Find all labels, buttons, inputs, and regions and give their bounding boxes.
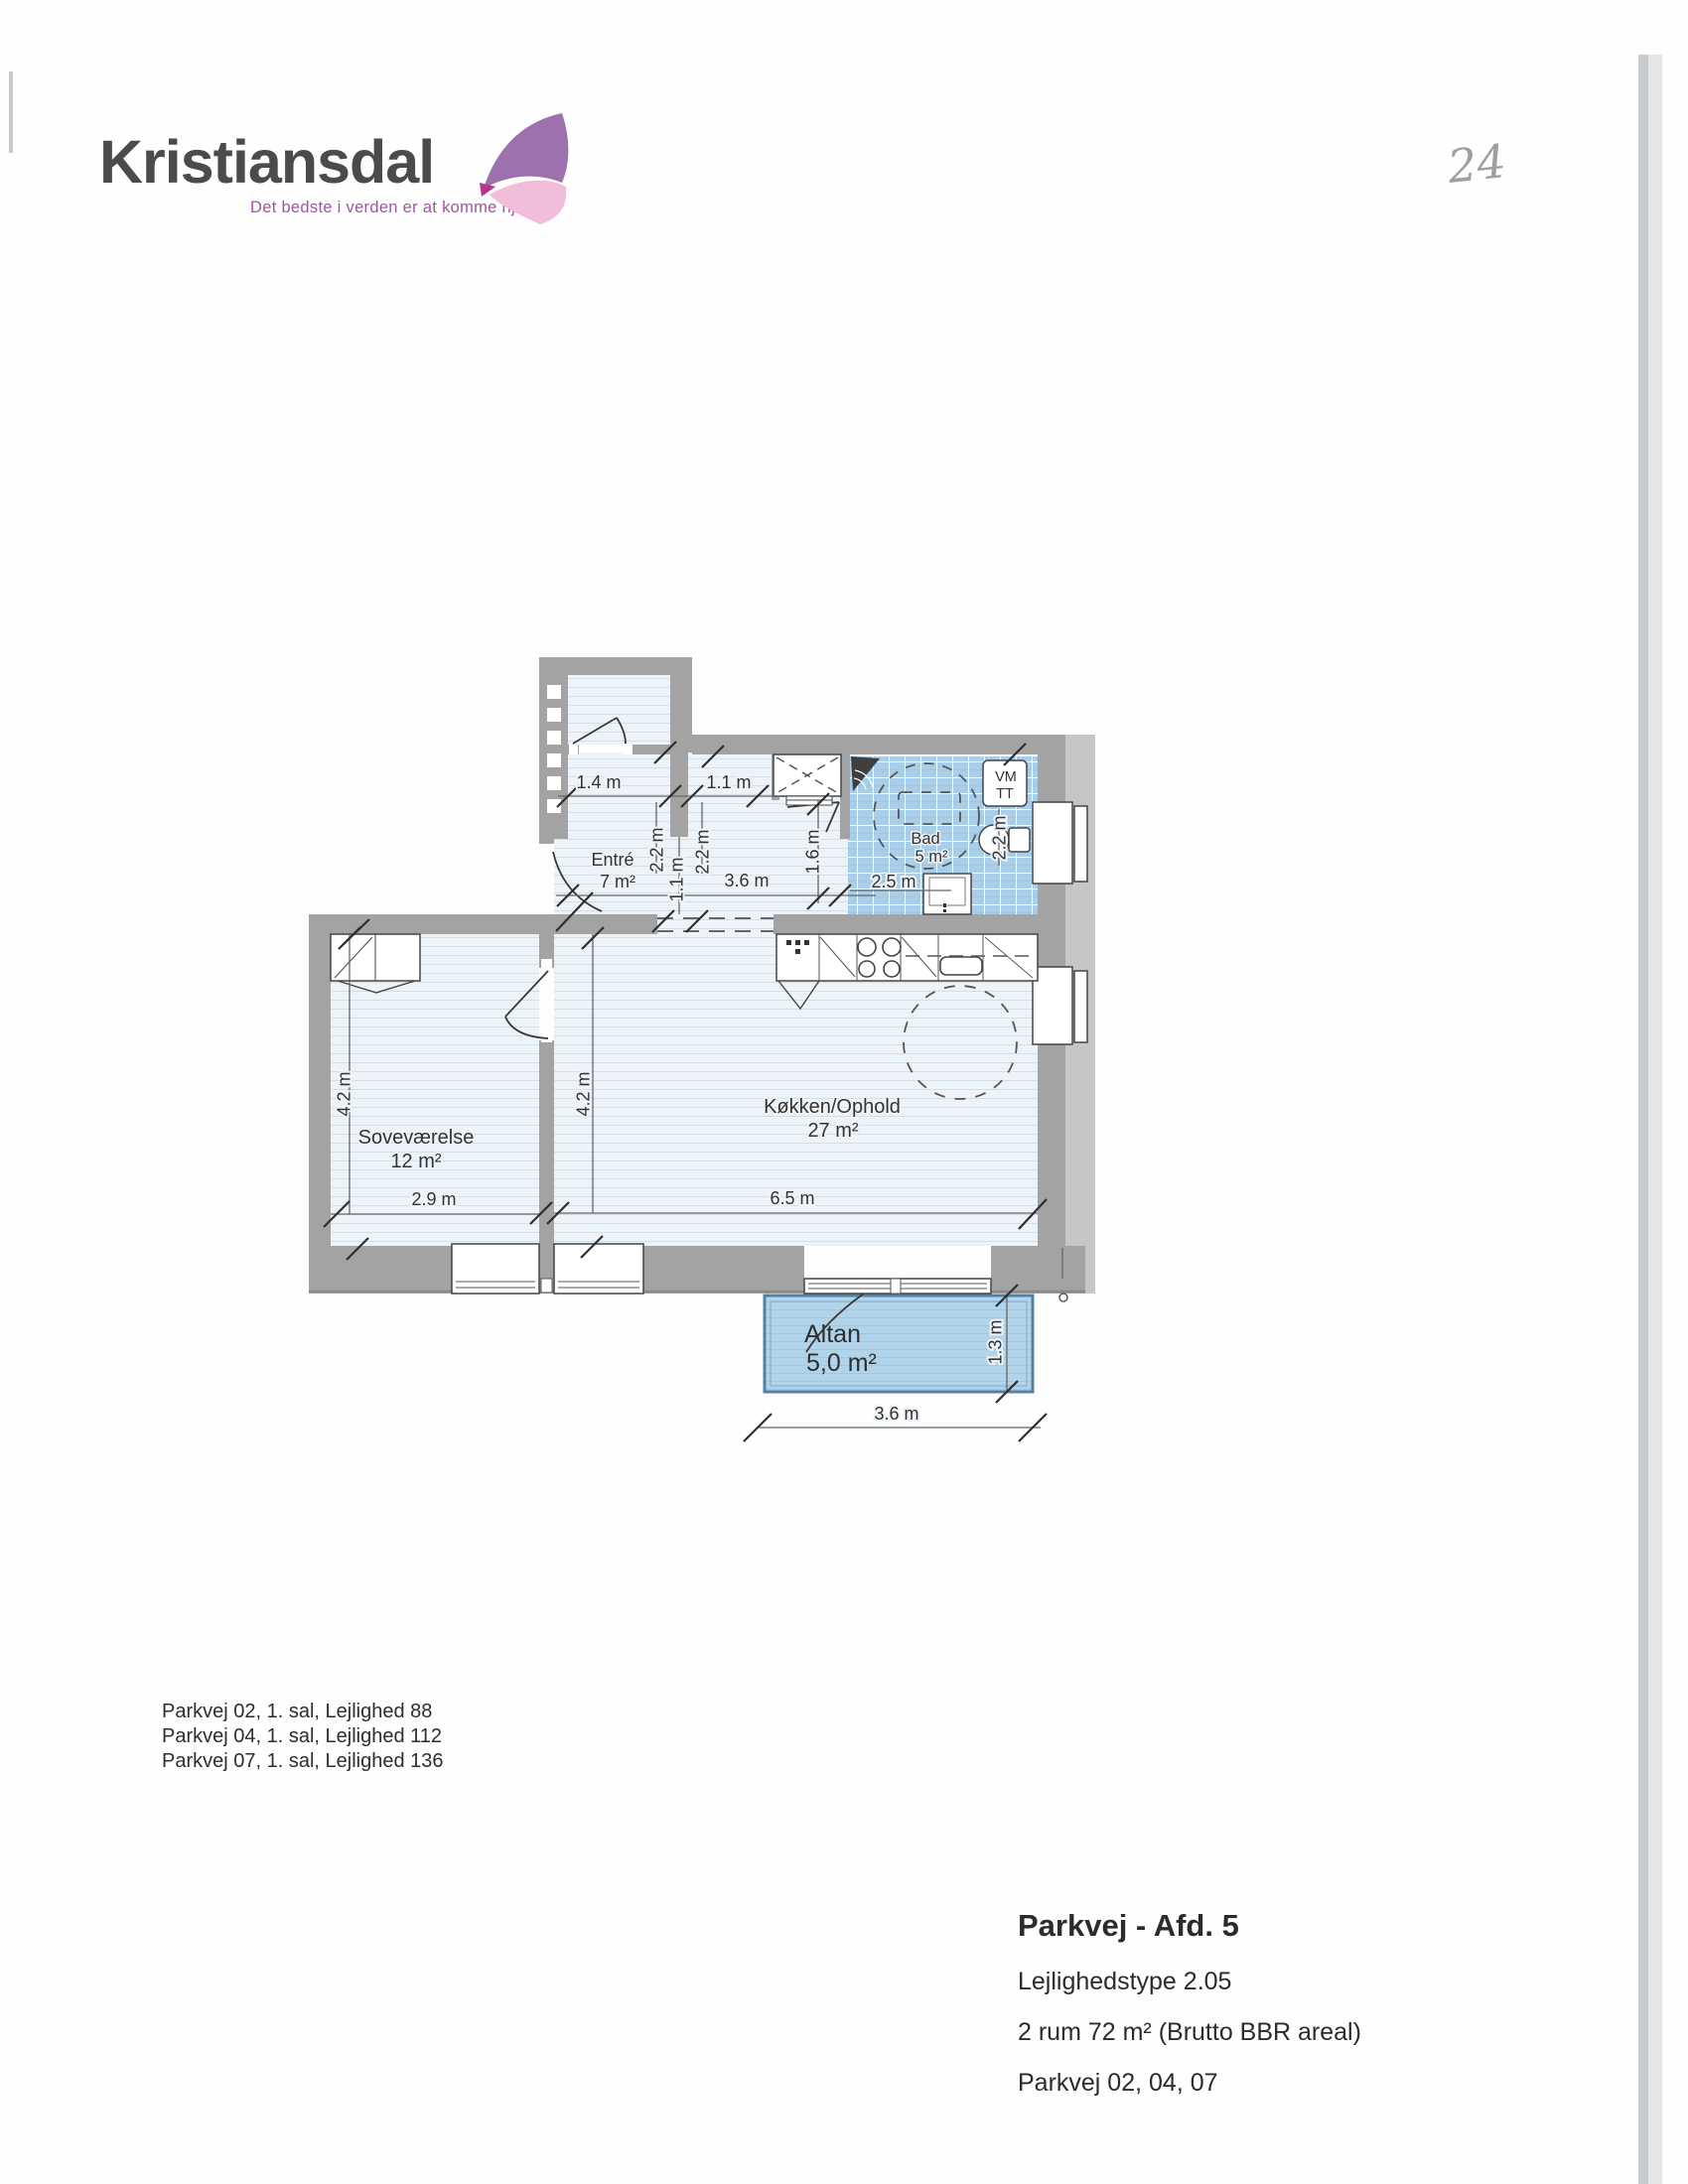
dim-1-4: 1.4 m [576,772,621,792]
dim-2-2b: 2.2 m [692,829,712,874]
room-label-sovevaerelse: Soveværelse [358,1127,475,1149]
dim-1-1a: 1.1 m [706,772,751,792]
dim-6-5: 6.5 m [770,1188,814,1208]
room-label-altan: Altan [804,1320,861,1348]
dim-2-5: 2.5 m [871,872,915,891]
room-area-altan: 5,0 m² [806,1349,877,1377]
dim-1-1b: 1.1 m [666,857,686,901]
room-area-sovevaerelse: 12 m² [390,1151,441,1172]
dim-3-6b: 3.6 m [874,1404,918,1424]
room-floor-vestibule [568,675,670,745]
dim-2-9: 2.9 m [411,1189,456,1209]
room-label-bad: Bad [911,830,939,848]
room-area-bad: 5 m² [915,848,949,866]
dryer-label: TT [996,786,1014,802]
room-label-kokken: Køkken/Ophold [764,1096,901,1118]
title-block: Parkvej - Afd. 5 Lejlighedstype 2.05 2 r… [1018,1908,1361,2119]
living-window [554,1244,643,1294]
apartment-addresses: Parkvej 02, 04, 07 [1018,2069,1361,2098]
washer-label: VM [995,769,1017,785]
dim-2-2a: 2.2 m [646,827,666,872]
bath-radiator [1033,802,1072,884]
room-area-kokken: 27 m² [807,1120,858,1142]
sink-icon [923,874,971,914]
dim-4-2a: 4.2 m [334,1071,353,1116]
dim-1-6: 1.6 m [802,829,822,874]
room-area-entre: 7 m² [600,872,635,891]
living-radiator [1033,967,1072,1044]
bedroom-window [452,1244,539,1294]
dim-4-2b: 4.2 m [573,1071,593,1116]
apartment-type: Lejlighedstype 2.05 [1018,1968,1361,1996]
unit-list: Parkvej 02, 1. sal, Lejlighed 88 Parkvej… [162,1700,444,1774]
living-window-band [1074,971,1087,1042]
floor-plan: Entré 7 m² Bad 5 m² Soveværelse 12 m² Kø… [0,0,1688,2184]
unit-line: Parkvej 07, 1. sal, Lejlighed 136 [162,1749,444,1774]
room-label-entre: Entré [591,850,633,870]
unit-line: Parkvej 04, 1. sal, Lejlighed 112 [162,1724,444,1749]
project-title: Parkvej - Afd. 5 [1018,1908,1361,1944]
kitchen-sink [940,957,982,975]
dim-1-3: 1.3 m [985,1319,1005,1364]
dim-3-6a: 3.6 m [724,871,769,890]
scanned-page: Kristiansdal Det bedste i verden er at k… [0,0,1688,2184]
bath-window-band [1074,806,1087,882]
dim-2-2c: 2.2 m [989,815,1009,860]
apartment-size: 2 rum 72 m² (Brutto BBR areal) [1018,2018,1361,2047]
unit-line: Parkvej 02, 1. sal, Lejlighed 88 [162,1700,444,1724]
